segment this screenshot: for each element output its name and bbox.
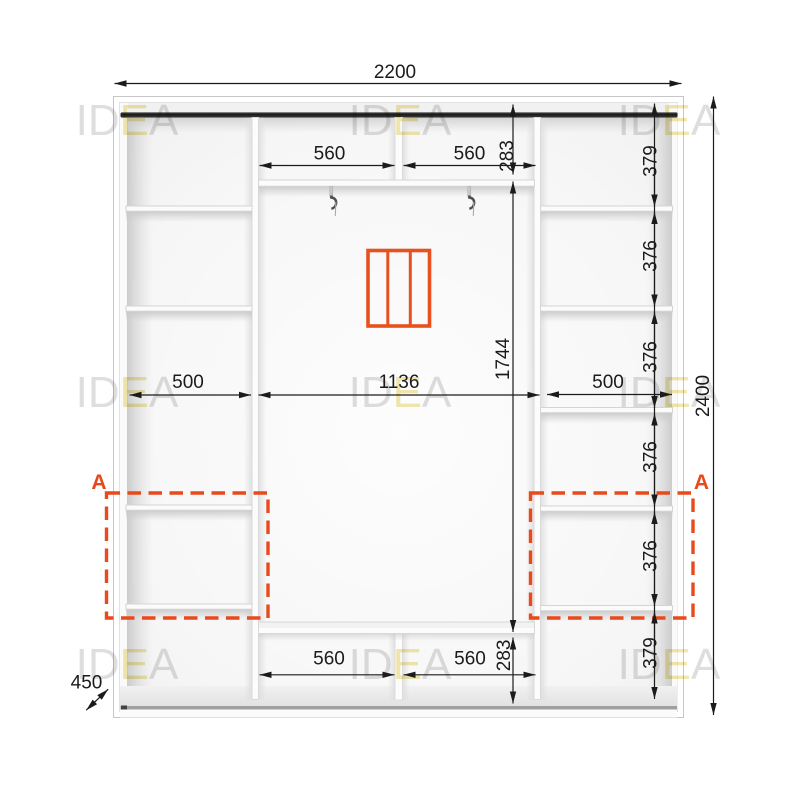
svg-text:560: 560 xyxy=(454,649,486,670)
svg-text:500: 500 xyxy=(172,372,204,393)
svg-text:IDEA: IDEA xyxy=(76,96,179,145)
svg-text:500: 500 xyxy=(592,372,624,393)
svg-text:IDEA: IDEA xyxy=(76,368,179,417)
svg-text:IDEA: IDEA xyxy=(618,96,721,145)
svg-text:A: A xyxy=(694,471,709,494)
svg-text:283: 283 xyxy=(497,140,518,172)
svg-text:2400: 2400 xyxy=(693,375,714,417)
svg-text:376: 376 xyxy=(641,240,662,272)
svg-text:560: 560 xyxy=(454,144,486,165)
svg-text:376: 376 xyxy=(641,441,662,473)
svg-text:IDEA: IDEA xyxy=(618,640,721,689)
svg-text:1136: 1136 xyxy=(379,372,420,393)
svg-text:560: 560 xyxy=(314,144,346,165)
svg-text:IDEA: IDEA xyxy=(349,640,452,689)
svg-text:376: 376 xyxy=(641,341,662,373)
svg-text:283: 283 xyxy=(494,640,515,672)
svg-text:560: 560 xyxy=(313,649,345,670)
svg-text:376: 376 xyxy=(641,540,662,572)
svg-text:450: 450 xyxy=(71,673,103,694)
svg-text:IDEA: IDEA xyxy=(349,96,452,145)
svg-text:A: A xyxy=(91,471,106,494)
svg-text:2200: 2200 xyxy=(374,62,416,83)
svg-text:379: 379 xyxy=(641,145,662,177)
svg-text:1744: 1744 xyxy=(493,337,514,380)
svg-text:379: 379 xyxy=(641,637,662,669)
